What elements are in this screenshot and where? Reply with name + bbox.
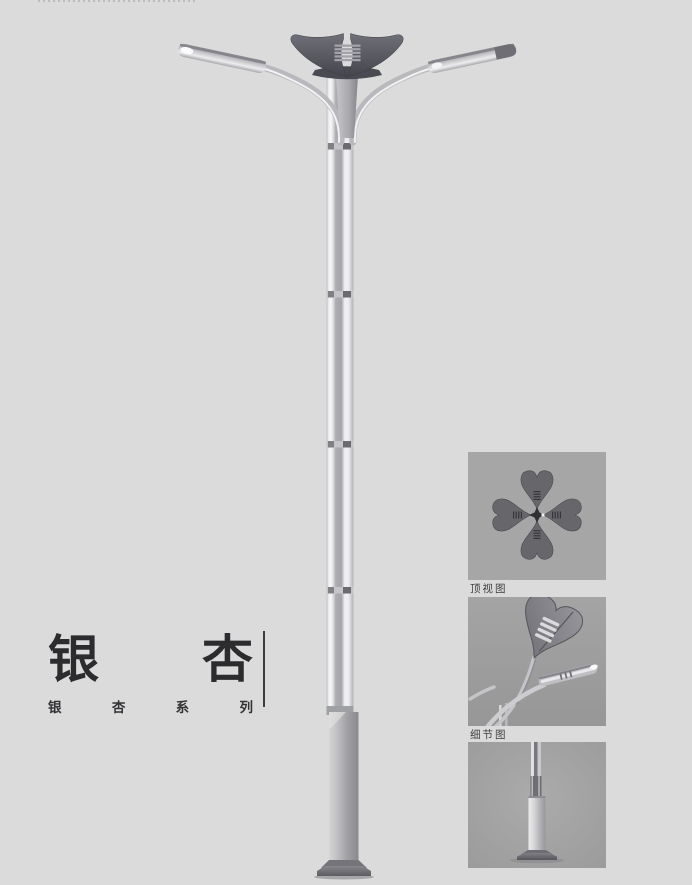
base-column <box>529 796 546 850</box>
series-char: 列 <box>239 696 253 716</box>
figure-caption-detail-view: 细节图 <box>470 727 508 742</box>
base-pole-upper <box>531 742 542 796</box>
product-series-label: 银 杏 系 列 <box>48 696 253 716</box>
detail-view-drawing <box>468 597 606 726</box>
brand-block: 银 杏 银 杏 系 列 <box>48 633 253 716</box>
title-vertical-rule <box>263 631 265 707</box>
base-view-drawing <box>468 742 606 868</box>
top-view-drawing <box>468 452 606 580</box>
title-char: 银 <box>48 633 99 687</box>
series-char: 银 <box>48 696 62 716</box>
lamp-base <box>314 706 374 880</box>
figure-top-view <box>468 452 606 580</box>
series-char: 杏 <box>112 696 126 716</box>
lamp-head-left <box>177 43 268 74</box>
series-char: 系 <box>176 696 190 716</box>
figure-base-view <box>468 742 606 868</box>
product-title: 银 杏 <box>48 633 253 687</box>
figure-detail-view <box>468 597 606 726</box>
catalog-page: 银 杏 银 杏 系 列 <box>0 0 692 885</box>
title-char: 杏 <box>202 633 253 687</box>
lamp-pole <box>327 78 354 715</box>
lamp-head-right <box>427 43 518 74</box>
figure-caption-top-view: 顶视图 <box>470 581 508 596</box>
